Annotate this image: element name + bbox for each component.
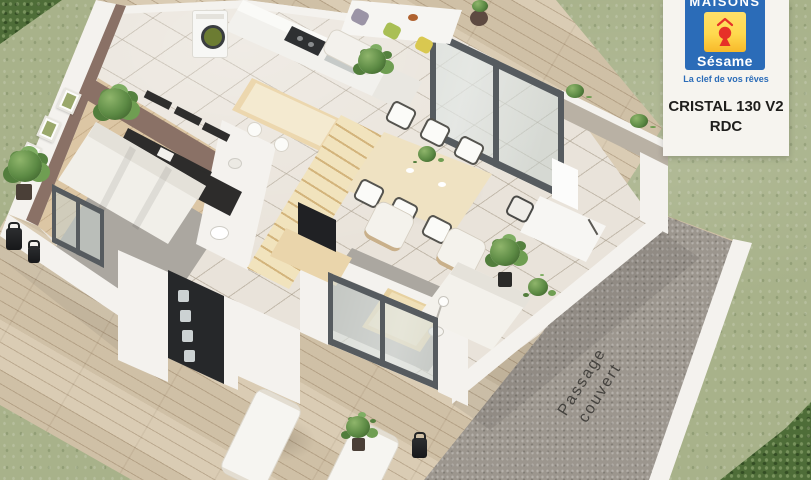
brand-logo: MAISONS Sésame	[685, 0, 765, 70]
planter-greenery	[566, 84, 584, 98]
bar-stool	[274, 137, 289, 152]
bar-stool	[247, 122, 262, 137]
plant	[490, 238, 520, 266]
table-dish	[406, 168, 414, 173]
plant	[528, 278, 548, 296]
table-dish	[438, 182, 446, 187]
model-level: RDC	[663, 117, 789, 137]
plant-pot	[470, 10, 488, 26]
floor-plan-render: Passage couvert MAISONS Sésame La clef d…	[0, 0, 811, 480]
plant-pot	[352, 438, 365, 451]
lantern	[28, 246, 40, 263]
plant	[8, 150, 42, 182]
plant	[346, 416, 370, 438]
terrace-food	[408, 14, 418, 21]
plant	[98, 88, 132, 120]
plant	[472, 0, 488, 12]
brand-card: MAISONS Sésame La clef de vos rêves CRIS…	[663, 0, 789, 156]
keyhole-icon	[704, 12, 746, 52]
floor-lamp-head	[438, 296, 449, 307]
door-glazing	[180, 310, 191, 322]
washer-panel	[196, 14, 224, 19]
cooktop-pan	[308, 42, 314, 47]
brand-top-label: MAISONS	[685, 0, 765, 9]
model-label: CRISTAL 130 V2 RDC	[663, 97, 789, 136]
plant-pot	[498, 272, 512, 287]
brand-name-label: Sésame	[685, 53, 765, 69]
lantern	[412, 438, 427, 458]
washer-door	[201, 25, 225, 49]
planter-greenery	[630, 114, 648, 128]
toilet	[210, 226, 229, 240]
logo-yellow-square	[704, 12, 746, 52]
wc-sink	[228, 158, 242, 169]
washing-machine	[192, 10, 228, 58]
cooktop-pan	[297, 36, 303, 41]
brand-tagline: La clef de vos rêves	[663, 74, 789, 84]
table-centerpiece-plant	[418, 146, 436, 162]
model-name: CRISTAL 130 V2	[663, 97, 789, 117]
lantern	[6, 228, 22, 250]
door-glazing	[182, 330, 193, 342]
plant-pot	[16, 184, 32, 200]
door-glazing	[184, 350, 195, 362]
plant	[358, 48, 386, 74]
door-glazing	[178, 290, 189, 302]
